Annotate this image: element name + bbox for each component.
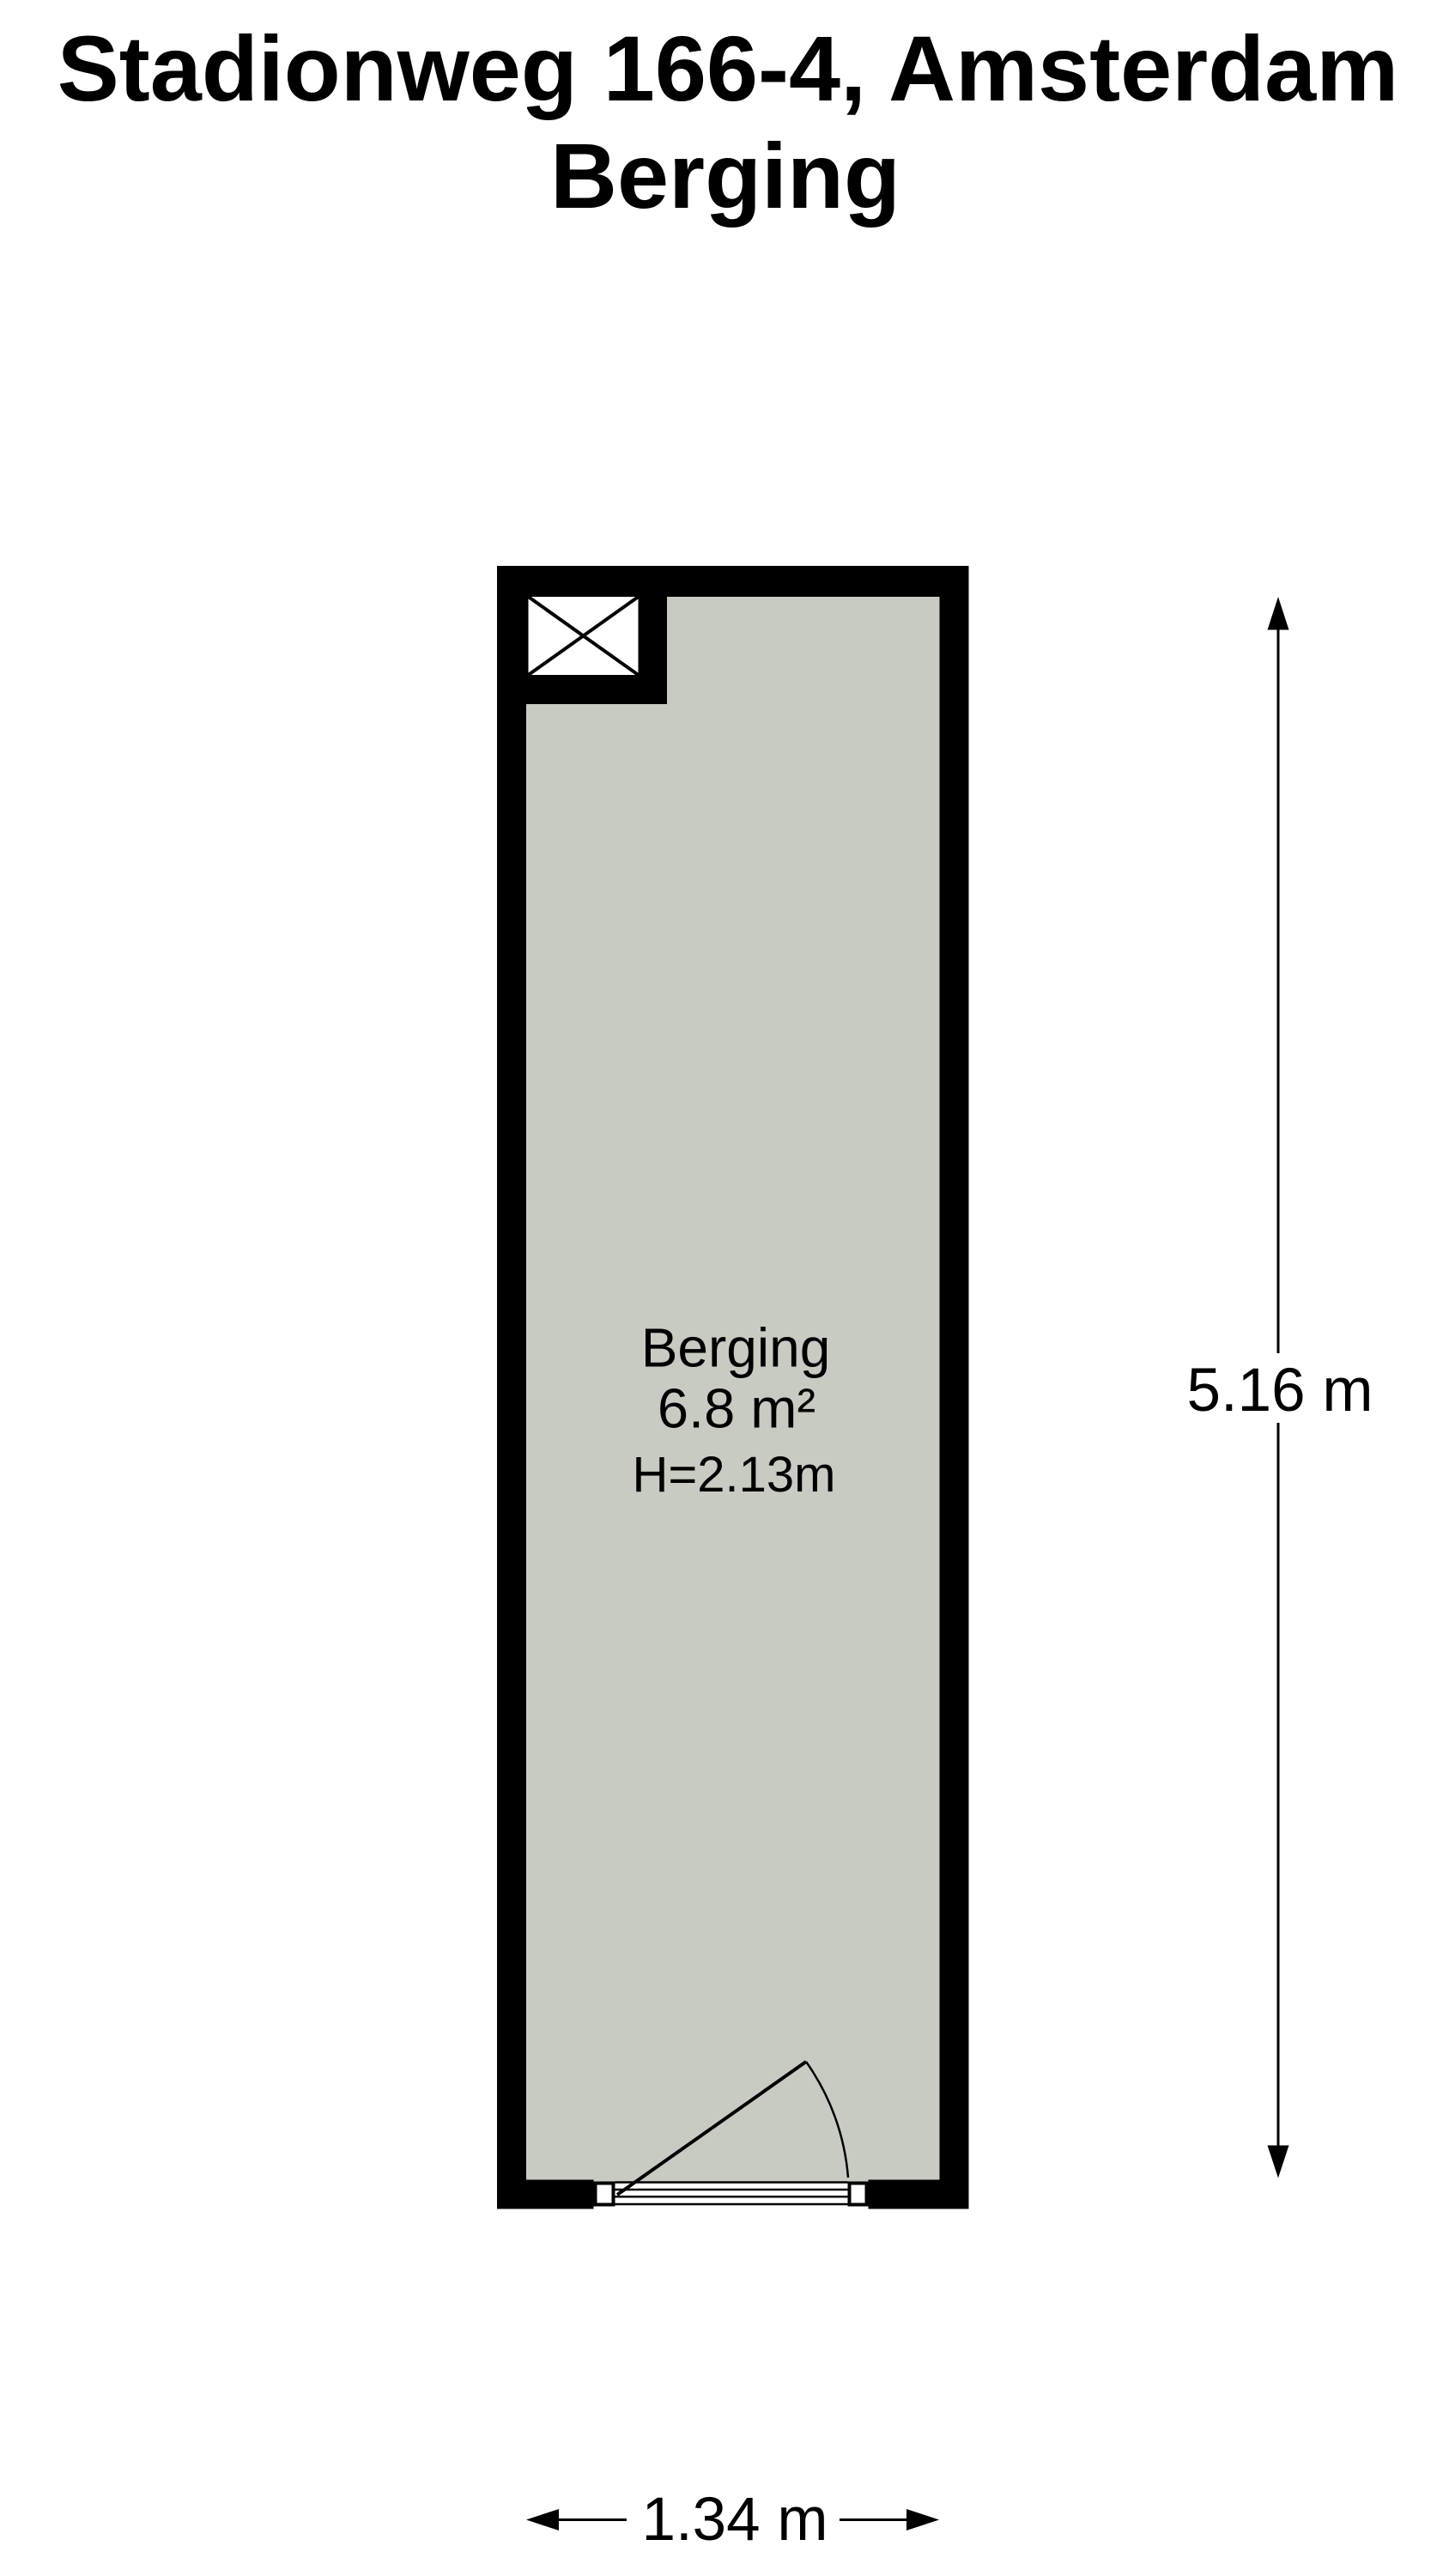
svg-text:5.16 m: 5.16 m — [1186, 1357, 1373, 1425]
svg-text:6.8 m²: 6.8 m² — [658, 1377, 815, 1440]
svg-text:1.34 m: 1.34 m — [641, 2486, 828, 2554]
svg-text:Stadionweg 166-4, Amsterdam: Stadionweg 166-4, Amsterdam — [58, 16, 1398, 120]
svg-text:Berging: Berging — [550, 124, 900, 228]
svg-text:H=2.13m: H=2.13m — [633, 1447, 836, 1503]
svg-text:Berging: Berging — [641, 1317, 831, 1379]
